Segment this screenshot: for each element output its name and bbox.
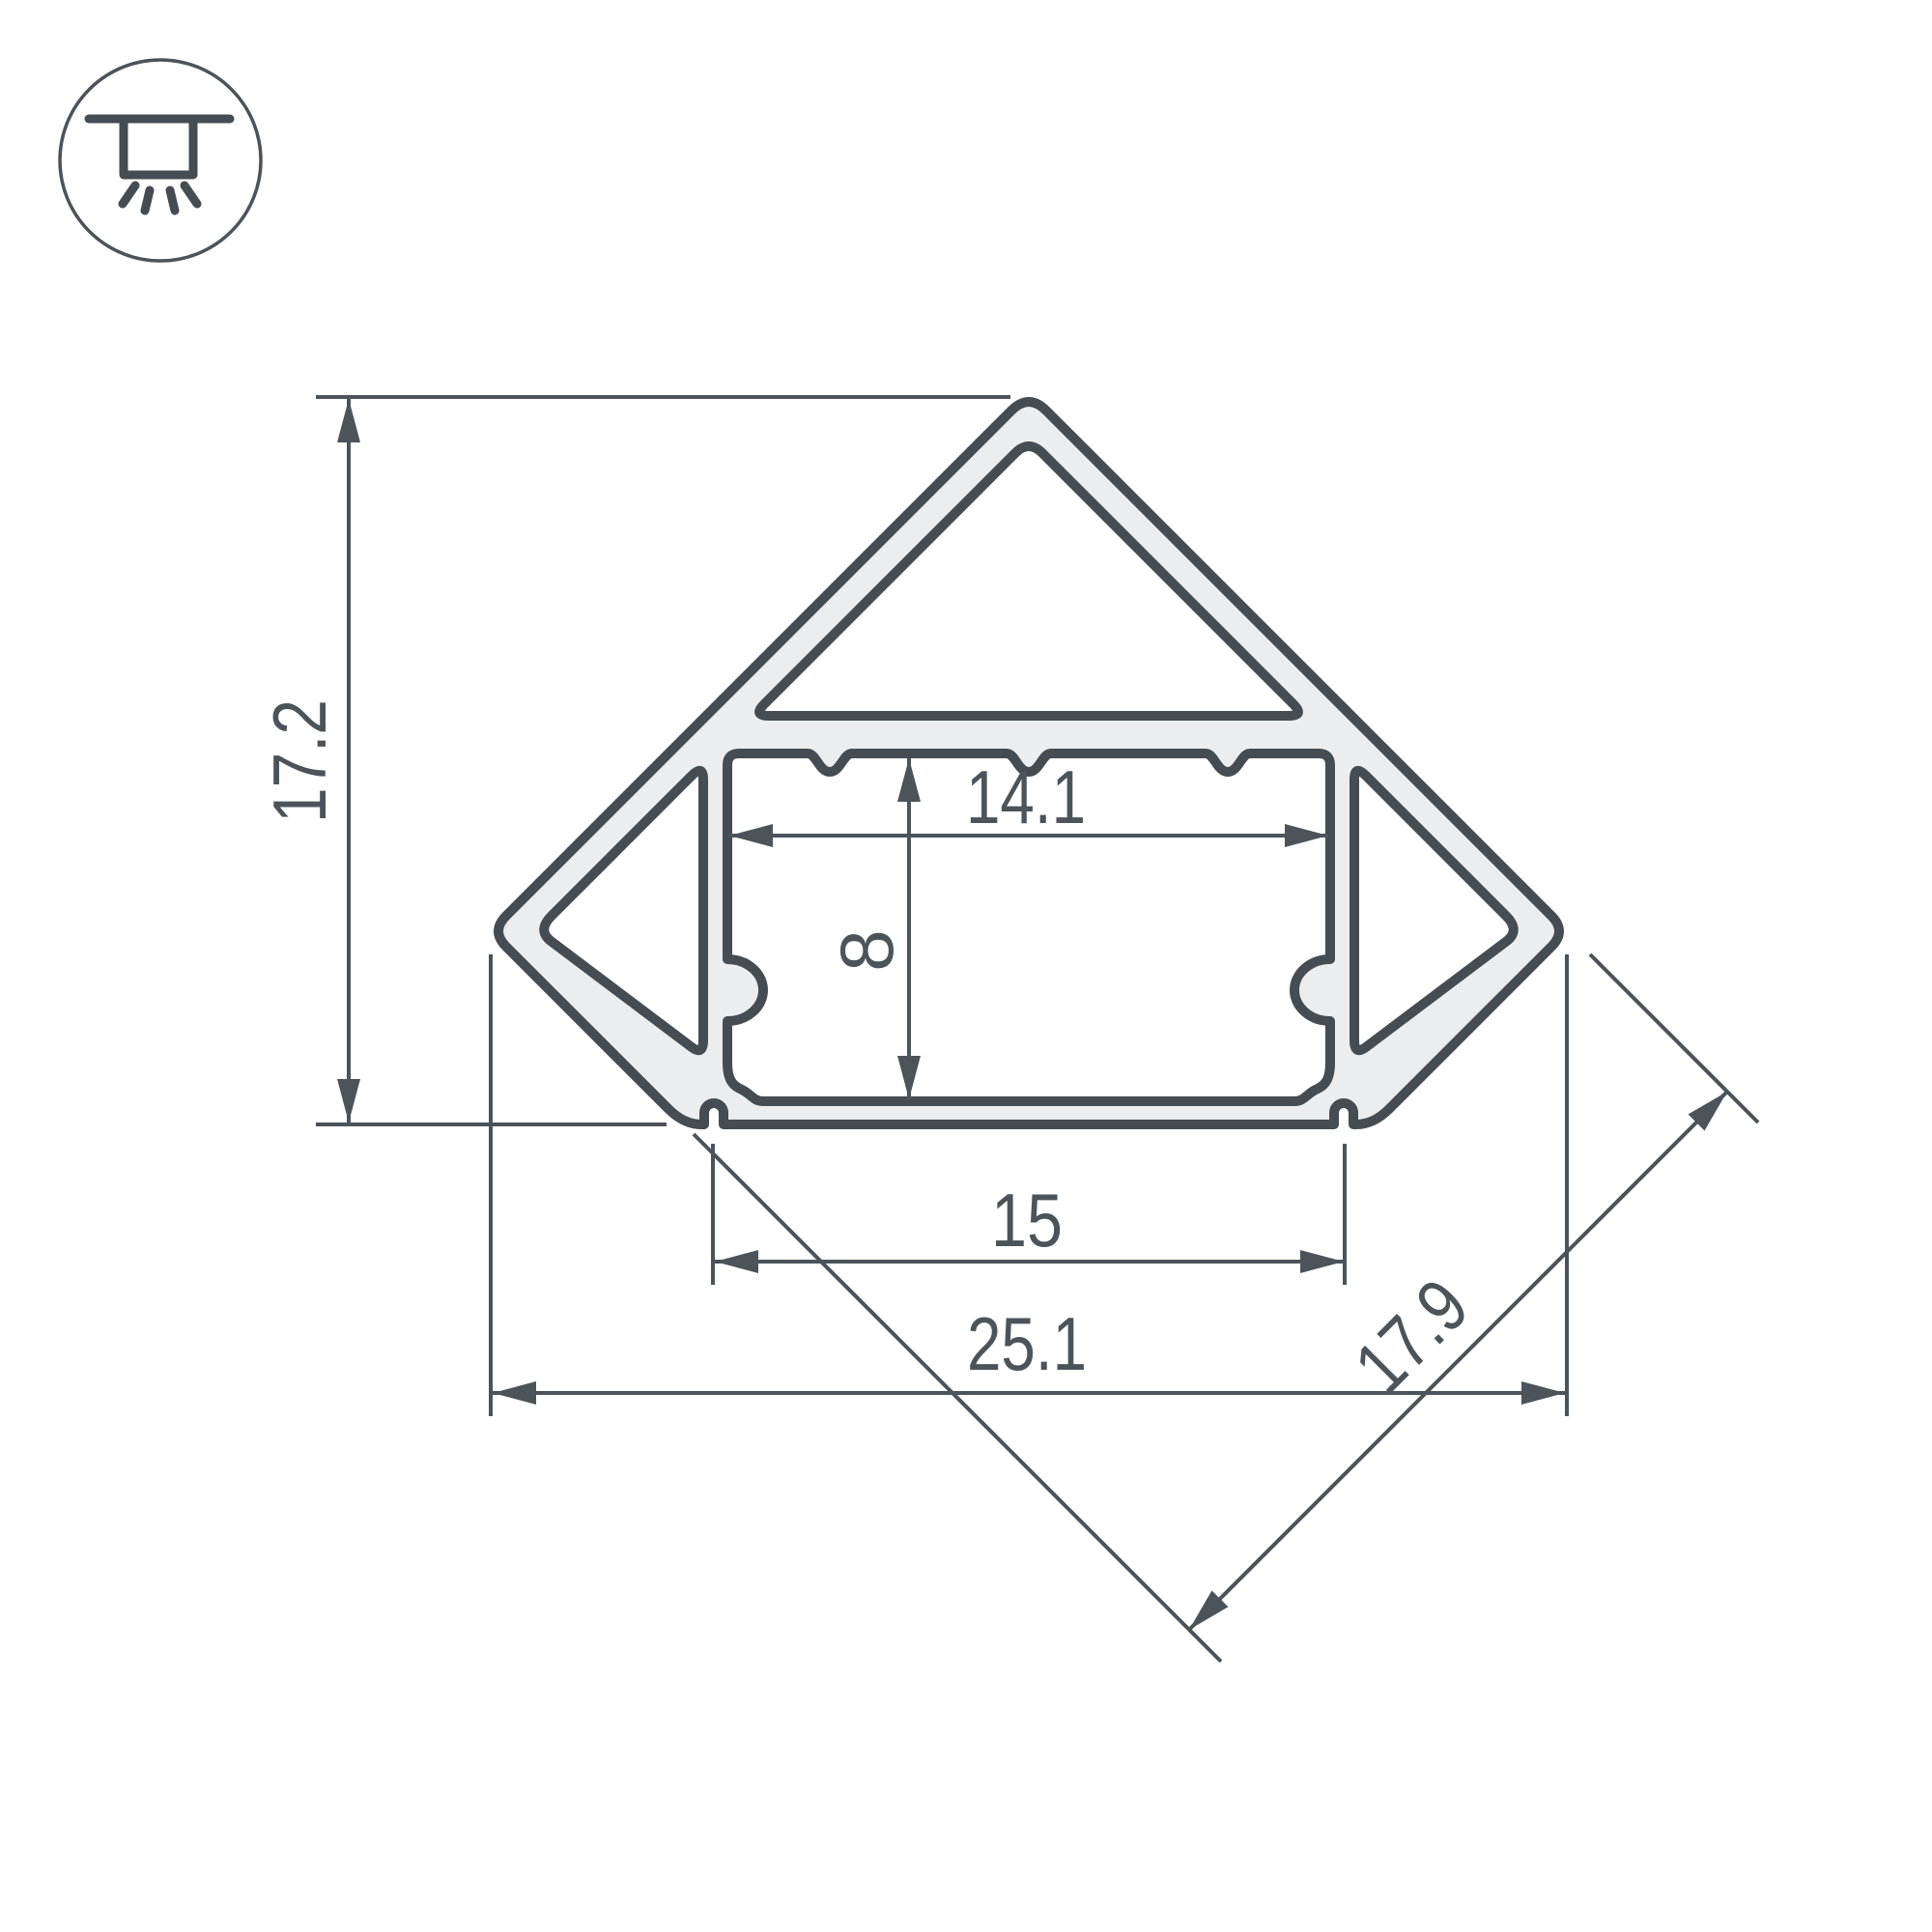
- dim-label-overall-height: 17.2: [257, 699, 342, 823]
- dimension-base-width: 15: [713, 1144, 1345, 1285]
- dim-label-overall-width: 25.1: [967, 1301, 1087, 1386]
- icon-glyph: [89, 119, 230, 211]
- recessed-light-icon: [60, 60, 261, 261]
- profile-technical-drawing: 17.2 14.1 8 15 25.1 17.9: [0, 0, 1932, 1932]
- dim-label-base-width: 15: [991, 1178, 1063, 1263]
- dim-label-channel-height: 8: [824, 929, 909, 971]
- dimension-channel-height: 8: [824, 758, 921, 1099]
- drawing-canvas: 17.2 14.1 8 15 25.1 17.9: [0, 0, 1932, 1932]
- dim-label-channel-width: 14.1: [966, 754, 1086, 839]
- dim-label-face-width: 17.9: [1338, 1263, 1484, 1408]
- dimension-face-width: 17.9: [694, 954, 1758, 1662]
- icon-circle: [60, 60, 261, 261]
